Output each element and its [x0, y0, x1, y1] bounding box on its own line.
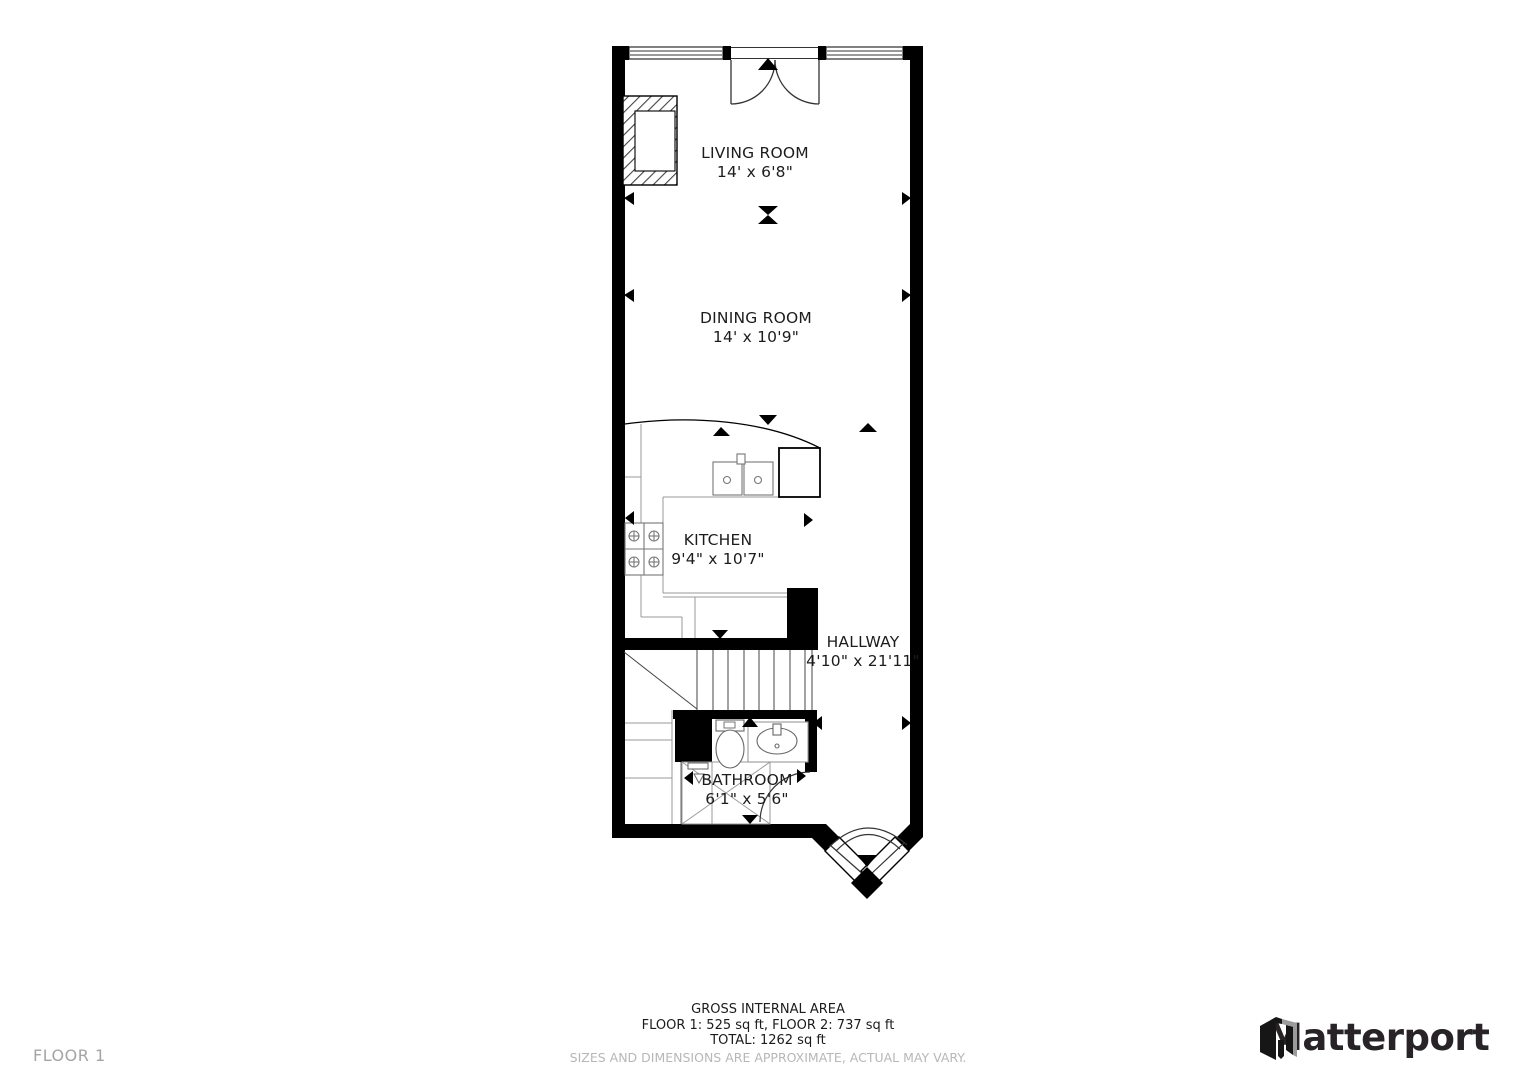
room-label-dining-room: DINING ROOM 14' x 10'9": [700, 309, 812, 347]
room-label-bathroom: BATHROOM 6'1" x 5'6": [701, 771, 792, 809]
room-dimensions: 4'10" x 21'11": [806, 652, 920, 671]
room-label-kitchen: KITCHEN 9'4" x 10'7": [671, 531, 765, 569]
understair-storage: [625, 710, 672, 824]
area-floors: FLOOR 1: 525 sq ft, FLOOR 2: 737 sq ft: [570, 1018, 967, 1034]
room-name: DINING ROOM: [700, 309, 812, 328]
room-label-hallway: HALLWAY 4'10" x 21'11": [806, 633, 920, 671]
kitchen-sink: [713, 454, 773, 495]
fireplace: [623, 96, 677, 185]
area-total: TOTAL: 1262 sq ft: [570, 1033, 967, 1049]
stove: [625, 523, 663, 575]
floor-label: FLOOR 1: [33, 1046, 106, 1065]
area-title: GROSS INTERNAL AREA: [570, 1002, 967, 1018]
room-dimensions: 6'1" x 5'6": [701, 790, 792, 809]
gross-internal-area: GROSS INTERNAL AREA FLOOR 1: 525 sq ft, …: [570, 1002, 967, 1065]
stairs: [624, 650, 812, 710]
room-name: HALLWAY: [806, 633, 920, 652]
windows: [629, 47, 903, 59]
disclaimer-text: SIZES AND DIMENSIONS ARE APPROXIMATE, AC…: [570, 1050, 967, 1066]
room-name: BATHROOM: [701, 771, 792, 790]
room-name: KITCHEN: [671, 531, 765, 550]
room-dimensions: 9'4" x 10'7": [671, 550, 765, 569]
room-label-living-room: LIVING ROOM 14' x 6'8": [701, 144, 809, 182]
matterport-logo: Matterport: [1256, 1014, 1489, 1062]
bathroom-sink: [748, 722, 808, 762]
toilet: [716, 720, 744, 768]
matterport-logo-icon: [1256, 1014, 1304, 1062]
kitchen-island: [779, 448, 820, 497]
room-dimensions: 14' x 10'9": [700, 328, 812, 347]
floorplan-canvas: LIVING ROOM 14' x 6'8" DINING ROOM 14' x…: [0, 0, 1527, 1080]
room-dimensions: 14' x 6'8": [701, 163, 809, 182]
room-name: LIVING ROOM: [701, 144, 809, 163]
